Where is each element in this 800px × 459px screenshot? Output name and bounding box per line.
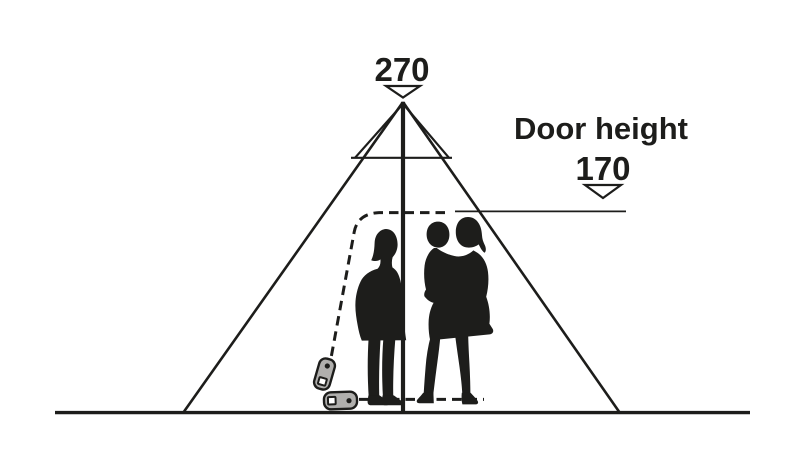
adult-front-foot <box>382 395 403 405</box>
parent-child-torso-shape <box>424 248 493 340</box>
door-height-value: 170 <box>575 150 630 187</box>
door-height-label: Door height <box>514 111 688 146</box>
parent-left-leg <box>424 336 441 397</box>
parent-right-foot <box>462 393 479 405</box>
diagram-canvas: 270 Door height 170 <box>0 0 800 459</box>
zipper-pull-upper-icon <box>313 357 337 391</box>
adult-back-leg <box>368 338 381 399</box>
zipper-upper-slot <box>318 377 327 386</box>
child-head-shape <box>427 222 450 248</box>
parent-head-shape <box>456 217 486 253</box>
peak-height-value: 270 <box>374 51 429 88</box>
parent-left-foot <box>417 393 434 403</box>
tent-height-diagram: 270 Door height 170 <box>0 0 800 459</box>
cap-right-edge <box>404 105 449 158</box>
peak-height-arrow-icon <box>386 86 420 98</box>
adult-body-shape <box>355 229 406 341</box>
adult-front-leg <box>382 338 395 399</box>
zipper-pull-lower-icon <box>324 391 358 409</box>
zipper-lower-slot <box>328 397 336 405</box>
cap-left-edge <box>355 105 402 158</box>
adult-with-child-silhouette <box>417 217 493 404</box>
parent-right-leg <box>455 336 470 397</box>
door-height-arrow-icon <box>585 185 621 198</box>
adult-silhouette <box>355 229 406 405</box>
